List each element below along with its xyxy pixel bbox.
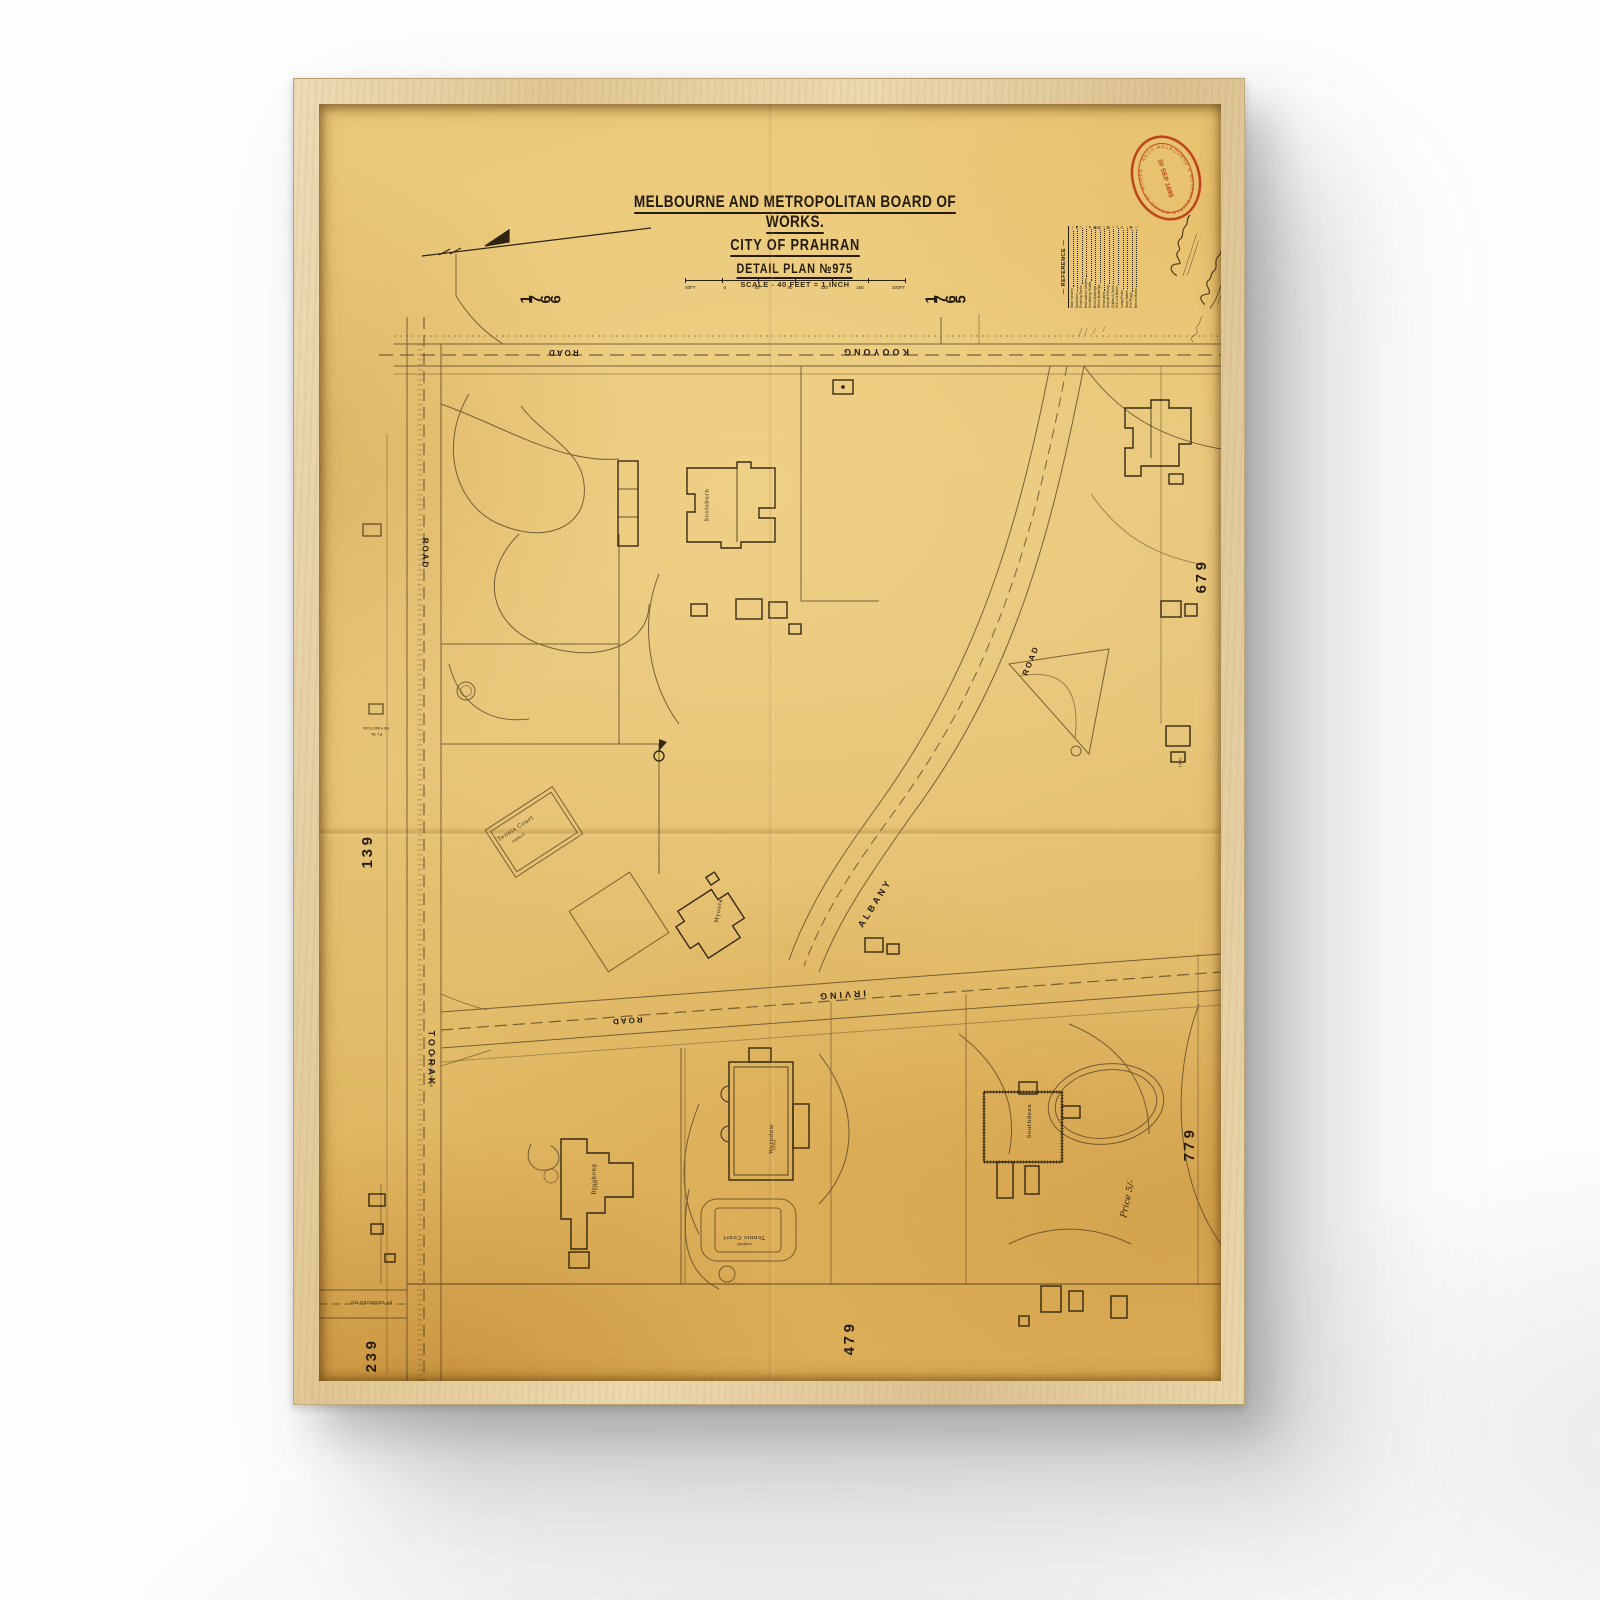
signature-marks [1168,214,1221,342]
adjoining-plan-number-top-left: 1766 [521,290,561,307]
adjoining-plan-number-right-upper: 976 [1197,560,1206,595]
legend-title: — REFERENCE — [1061,226,1069,308]
adjoining-plan-number-left-lower: 932 [367,1339,376,1374]
scale-bar: 40FT04080120160200FT [685,280,905,290]
adjoining-plan-number-bottom: 974 [845,1322,854,1357]
adjoining-plan-number-left-upper: 931 [363,835,372,870]
scale-bar-label: 40FT [685,285,696,290]
scale-bar-label: 0 [724,285,727,290]
building-material-brookong: brick [594,1179,599,1189]
map-subtitle: CITY OF PRAHRAN [555,237,1035,255]
picture-frame: MELBOURNE AND METROPOLITAN BOARD OF WORK… [293,78,1245,1405]
scale-bar-label: 40 [754,285,759,290]
building-material-werndew: brick [772,1139,777,1149]
legend-items: Main Sewers—Manholes■Flushing Tanks▪Reti… [1070,226,1138,308]
tennis-court-lower-surface: asphalt [737,1242,752,1247]
scale-bar-label: 120 [821,285,829,290]
map-sheet: MELBOURNE AND METROPOLITAN BOARD OF WORK… [319,104,1221,1381]
tennis-court-lower-label: Tennis Court [723,1234,765,1240]
scale-bar-line [685,280,905,285]
title-block: MELBOURNE AND METROPOLITAN BOARD OF WORK… [555,192,1035,289]
stamp-date: 30 SEP 1895 [1156,158,1174,199]
scale-bar-label: 200FT [892,285,905,290]
road-label-st-georges: ST GEORGES RD [351,1300,392,1305]
adjoining-plan-number-top-right: 1765 [926,290,966,307]
road-label-kooyong-road: ROAD [547,348,579,357]
plan-number: DETAIL PLAN №975 [555,261,1035,276]
road-label-heyington: HEYINGTON [363,726,389,731]
scale-bar-label: 80 [787,285,792,290]
building-label-scotsburn: Scotsburn [704,489,710,522]
scale-bar-label: 160 [856,285,864,290]
map-title: MELBOURNE AND METROPOLITAN BOARD OF WORK… [555,192,1035,232]
road-label-toorak-road: ROAD [420,538,429,570]
legend-item: Bench Marks△ [1134,226,1139,308]
adjoining-plan-number-right-lower: 977 [1185,1128,1194,1163]
reference-legend: — REFERENCE — Main Sewers—Manholes■Flush… [1061,226,1173,308]
road-label-toorak-ref: M.M.B.W. №256 [429,1054,434,1087]
road-label-kooyong: KOOYONG [841,347,909,357]
road-label-heyington-ref: PL № [371,732,382,737]
year-note: 1892 [1178,757,1183,767]
scale-bar-labels: 40FT04080120160200FT [685,285,905,290]
building-label-southdean: Southdean [1027,1104,1033,1138]
